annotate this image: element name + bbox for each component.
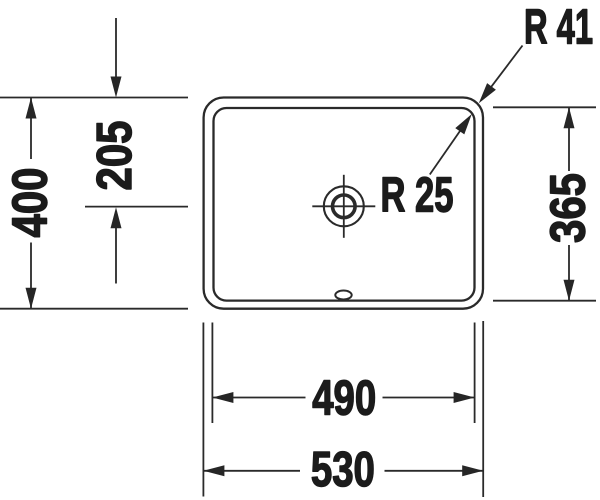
svg-text:R 25: R 25 <box>381 169 454 223</box>
svg-text:490: 490 <box>312 372 376 426</box>
svg-text:R 41: R 41 <box>524 1 593 55</box>
svg-text:400: 400 <box>4 168 58 238</box>
svg-text:205: 205 <box>88 121 142 191</box>
svg-text:365: 365 <box>542 173 596 243</box>
svg-text:530: 530 <box>311 443 375 497</box>
